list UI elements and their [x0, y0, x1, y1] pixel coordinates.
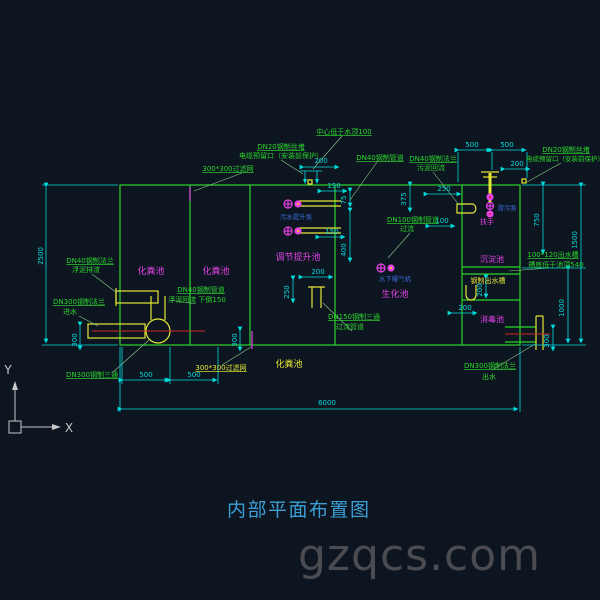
- label-handrail: 扶手: [480, 217, 494, 226]
- dim-500-a: 500: [139, 371, 152, 379]
- note-center-below-top: 中心低于水顶100: [316, 127, 371, 136]
- label-septic-1: 化粪池: [137, 265, 164, 277]
- aerator-symbol: [377, 264, 394, 272]
- dim-300-filter: 300: [231, 333, 239, 346]
- label-septic-bottom: 化粪池: [275, 358, 302, 370]
- dim-75: 75: [340, 196, 348, 205]
- note-dn300-flange-out-2: 出水: [482, 372, 496, 381]
- dim-500-b: 500: [187, 371, 200, 379]
- dim-200-tr: 200: [510, 160, 523, 168]
- dim-300-right: 300: [543, 334, 551, 347]
- dim-150-a: 150: [327, 182, 340, 190]
- dim-200-rh: 200: [458, 304, 471, 312]
- watermark: gzqcs.com: [298, 530, 541, 581]
- submersible-pump-symbol: [487, 194, 494, 217]
- dim-250-v: 250: [283, 285, 291, 298]
- dim-100: 100: [435, 217, 448, 225]
- label-sediment-tank: 沉淀池: [480, 254, 504, 264]
- ucs-y-label: Y: [3, 363, 12, 377]
- note-dn20-plug-left-2: 电缆预留口（安装前保护）: [239, 151, 323, 160]
- note-filter-top: 300*300过滤网: [202, 164, 253, 173]
- dim-150-b: 150: [325, 228, 338, 236]
- pipe-centerlines: [92, 331, 550, 334]
- note-dn150-tee-1: DN150钢制三通: [328, 312, 380, 321]
- label-sewage-lift-pump: 污水提升泵: [280, 212, 313, 221]
- note-dn40-pipe-top: DN40钢制管道: [356, 153, 404, 162]
- dim-300-left: 300: [71, 333, 79, 346]
- label-disinfect-tank: 消毒池: [480, 314, 504, 324]
- label-underwater-aerator: 水下曝气机: [379, 274, 412, 283]
- note-dn100-pipe-1: DN100钢制管道: [387, 215, 439, 224]
- note-dn300-flange-in-1: DN300钢制法兰: [53, 297, 105, 306]
- dim-250-r: 250: [437, 185, 450, 193]
- dim-200-mid: 200: [311, 268, 324, 276]
- label-regulating-lift-tank: 调节提升池: [275, 251, 320, 263]
- note-dn20-plug-left-1: DN20钢制丝堵: [257, 142, 305, 151]
- note-dn300-flange-in-2: 进水: [63, 307, 77, 316]
- note-dn20-plug-right-2: 电缆预留口（安装前保护）: [526, 154, 600, 163]
- dim-200-rv: 200: [476, 283, 484, 296]
- note-dn40-flange-left-2: 浮泥排渣: [72, 265, 100, 274]
- note-dn40-flange-right-1: DN40钢制法兰: [409, 154, 457, 163]
- cad-viewport[interactable]: DN20钢制丝堵电缆预留口（安装前保护）300*300过滤网中心低于水顶100D…: [0, 0, 600, 600]
- ucs-axis-icon: [9, 381, 61, 433]
- dim-2500: 2500: [37, 247, 45, 265]
- note-outlet-channel-2: 槽底低于池顶540: [528, 260, 583, 269]
- dim-375: 375: [400, 192, 408, 205]
- inlet-piping: [88, 288, 170, 343]
- note-dn20-plug-right-1: DN20钢制丝堵: [542, 145, 590, 154]
- note-outlet-channel-1: 100*120出水槽: [527, 250, 578, 259]
- top-vent-symbol: [300, 171, 322, 184]
- dim-750: 750: [533, 213, 541, 226]
- dn150-tee-pipe: [308, 287, 325, 308]
- wall-bullet-pipe: [457, 204, 476, 213]
- dim-6000: 6000: [318, 399, 336, 407]
- drawing-title: 内部平面布置图: [227, 495, 371, 522]
- dim-400: 400: [340, 243, 348, 256]
- dim-1500: 1500: [571, 231, 579, 249]
- dim-200-top: 200: [314, 157, 327, 165]
- note-filter-bottom: 300*300过滤网: [195, 363, 246, 372]
- label-bio-tank: 生化池: [381, 288, 408, 300]
- note-dn150-tee-2: 过流管道: [336, 322, 364, 331]
- dim-1000: 1000: [558, 299, 566, 317]
- dim-500-c: 500: [465, 141, 478, 149]
- ucs-x-label: X: [65, 421, 73, 435]
- cable-port-marker-center: [308, 180, 312, 184]
- note-dn40-flange-right-2: 污泥回流: [417, 163, 445, 172]
- note-dn40-return-2: 浮泥回流 下倒150: [168, 295, 226, 304]
- note-dn100-pipe-2: 过流: [400, 224, 414, 233]
- tank-walls: [120, 185, 536, 345]
- cable-port-marker-right: [522, 179, 526, 183]
- note-dn40-return-1: DN40钢制管道: [177, 285, 225, 294]
- disinfect-pipe-elbow: [466, 285, 476, 300]
- note-dn300-tee: DN300钢制三通: [66, 370, 118, 379]
- label-septic-2: 化粪池: [202, 265, 229, 277]
- dim-500-d: 500: [500, 141, 513, 149]
- note-dn40-flange-left-1: DN40钢制法兰: [66, 256, 114, 265]
- note-dn300-flange-out-1: DN300钢制法兰: [464, 361, 516, 370]
- label-submersible-pump: 潜污泵: [497, 203, 517, 212]
